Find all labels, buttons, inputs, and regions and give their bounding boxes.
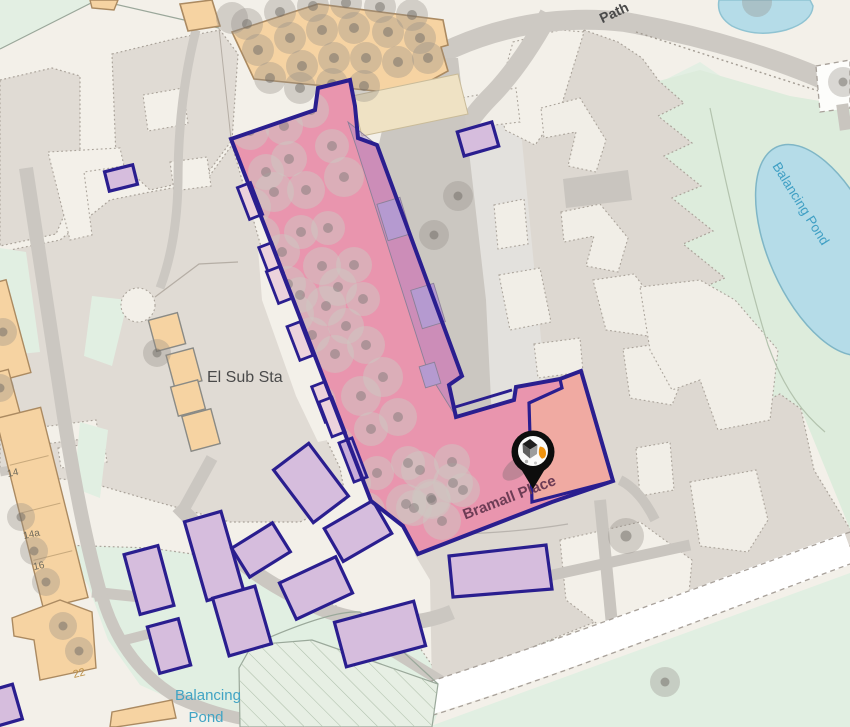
svg-text:El Sub Sta: El Sub Sta xyxy=(207,369,283,386)
svg-text:Balancing: Balancing xyxy=(175,687,241,704)
svg-text:Pond: Pond xyxy=(188,709,223,726)
